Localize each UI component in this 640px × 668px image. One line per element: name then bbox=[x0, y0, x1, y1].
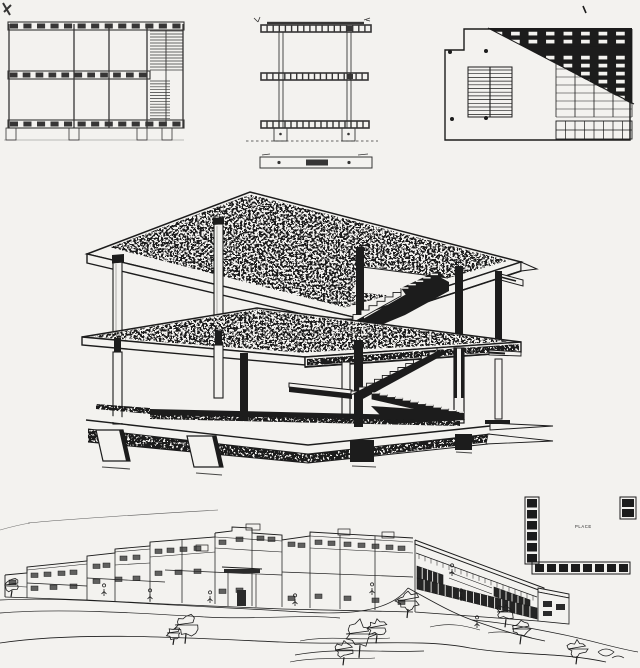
svg-text:PLACE: PLACE bbox=[575, 524, 592, 529]
